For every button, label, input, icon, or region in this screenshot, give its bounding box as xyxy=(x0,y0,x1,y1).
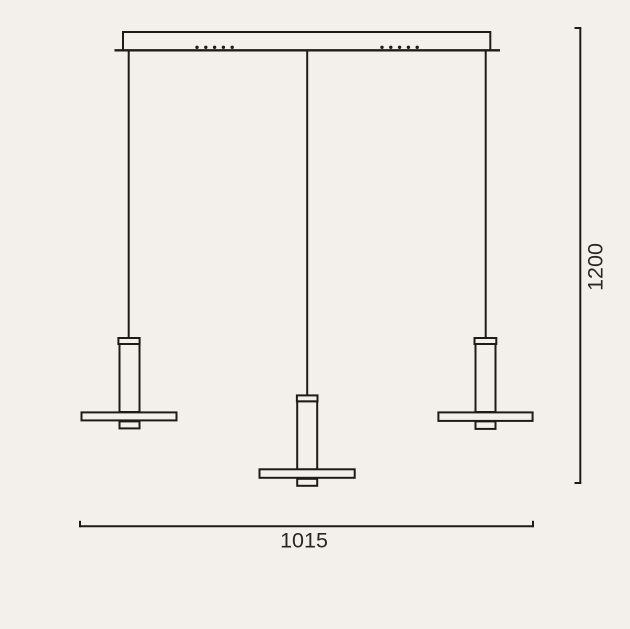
svg-text:1015: 1015 xyxy=(280,529,328,553)
svg-text:1200: 1200 xyxy=(583,243,607,291)
